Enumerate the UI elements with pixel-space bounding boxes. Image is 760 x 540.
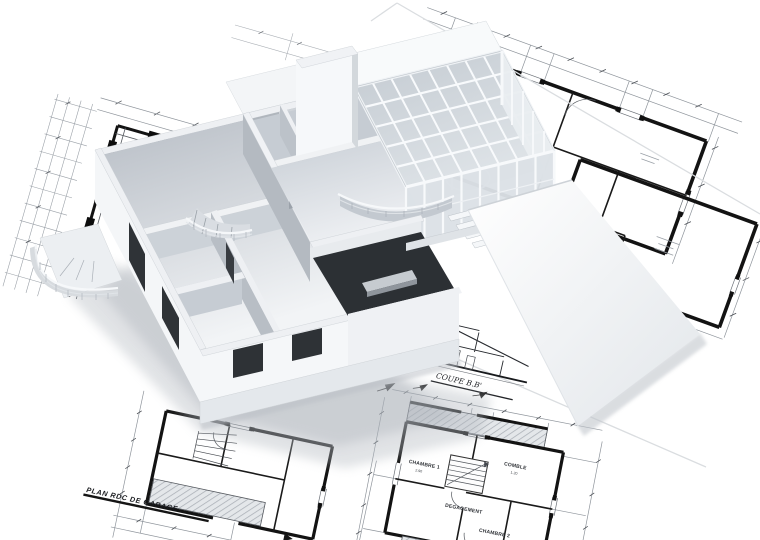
tall-wall-side bbox=[352, 46, 358, 150]
house-model bbox=[30, 21, 700, 426]
scene-svg: COUPE B.B' PLAN RDC DE GARAGE bbox=[0, 0, 760, 540]
tall-wall bbox=[296, 46, 358, 156]
room-label-degagement: DEGAGEMENT bbox=[445, 503, 483, 516]
room-dim-2: 1.20 bbox=[510, 471, 518, 476]
access-ramp bbox=[468, 180, 700, 426]
room-label-comble: COMBLE bbox=[504, 461, 528, 471]
room-label-chambre1: CHAMBRE 1 bbox=[408, 459, 440, 471]
architectural-scene: COUPE B.B' PLAN RDC DE GARAGE bbox=[0, 0, 760, 540]
balcony bbox=[30, 224, 122, 300]
room-dim-1: 2.90 bbox=[415, 468, 423, 473]
ramp-surface bbox=[468, 180, 700, 426]
